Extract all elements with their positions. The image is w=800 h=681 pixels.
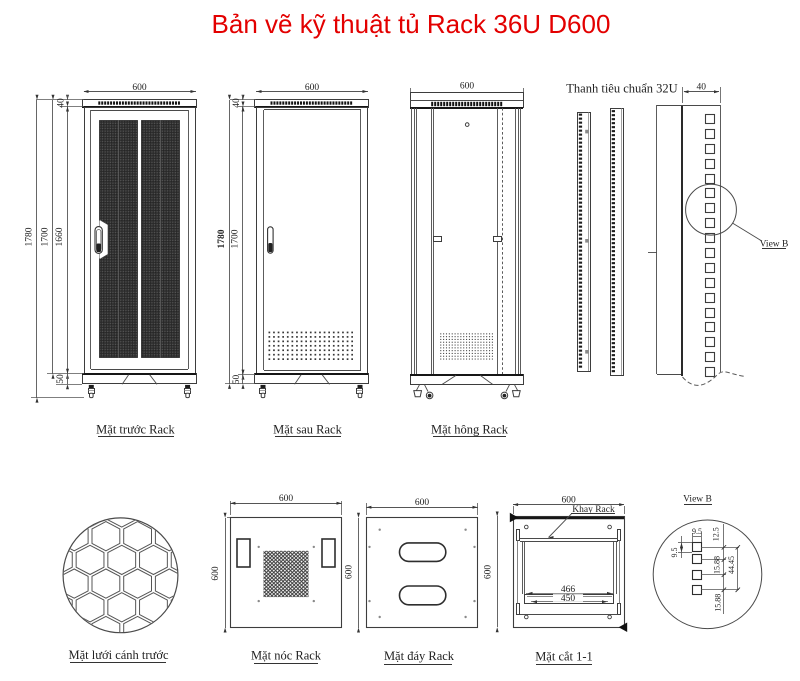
svg-text:600: 600 (415, 498, 430, 508)
svg-text:600: 600 (345, 565, 355, 580)
svg-text:Mặt trước Rack: Mặt trước Rack (96, 423, 175, 437)
svg-text:9.5: 9.5 (692, 527, 702, 536)
svg-text:40: 40 (57, 98, 67, 108)
svg-text:600: 600 (305, 83, 320, 93)
svg-text:12.5: 12.5 (711, 527, 720, 541)
svg-text:15.88: 15.88 (714, 594, 723, 612)
svg-text:450: 450 (561, 594, 576, 604)
svg-text:1780: 1780 (217, 229, 227, 248)
svg-text:15.88: 15.88 (713, 556, 722, 574)
svg-text:Thanh tiêu chuẩn 32U: Thanh tiêu chuẩn 32U (566, 82, 677, 96)
svg-text:50: 50 (56, 374, 66, 384)
svg-text:Mặt lưới cánh trước: Mặt lưới cánh trước (68, 648, 168, 662)
svg-text:50: 50 (232, 375, 242, 385)
svg-text:1700: 1700 (41, 227, 51, 246)
svg-text:1660: 1660 (55, 227, 65, 246)
svg-text:1780: 1780 (25, 227, 35, 246)
svg-text:9.5: 9.5 (670, 548, 679, 558)
svg-text:Mặt đáy Rack: Mặt đáy Rack (384, 649, 455, 663)
svg-text:600: 600 (132, 83, 147, 93)
svg-text:600: 600 (211, 566, 221, 581)
svg-text:Mặt cắt 1-1: Mặt cắt 1-1 (535, 650, 593, 664)
svg-text:Mặt nóc Rack: Mặt nóc Rack (251, 649, 322, 663)
svg-text:1700: 1700 (231, 229, 241, 248)
svg-text:600: 600 (484, 565, 494, 580)
svg-text:600: 600 (460, 82, 475, 92)
svg-text:View B: View B (683, 495, 712, 505)
svg-text:600: 600 (279, 494, 294, 504)
svg-text:40: 40 (232, 98, 242, 108)
svg-text:Mặt sau Rack: Mặt sau Rack (273, 423, 342, 437)
svg-text:44.45: 44.45 (727, 556, 736, 574)
svg-text:40: 40 (697, 82, 707, 92)
svg-text:Mặt hông Rack: Mặt hông Rack (431, 423, 509, 437)
svg-text:View B: View B (760, 239, 789, 249)
